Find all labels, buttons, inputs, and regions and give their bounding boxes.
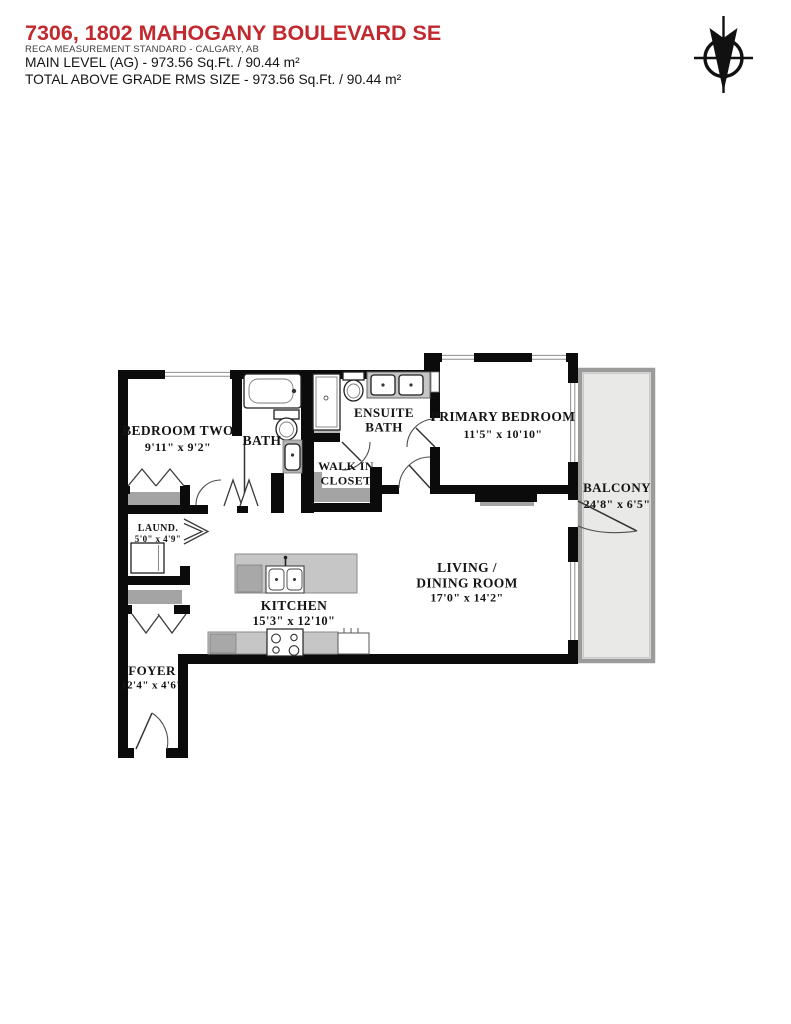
ensuite-double-vanity <box>367 372 430 398</box>
wall-segment <box>118 505 208 514</box>
island-dishwasher <box>237 565 262 592</box>
wall-segment <box>424 353 442 362</box>
walkin-closet-shelf <box>313 488 370 502</box>
room-label-bath: BATH <box>243 433 282 448</box>
bedroom-two-window <box>165 370 230 379</box>
room-label-bedroom-two: BEDROOM TWO <box>122 423 234 438</box>
room-label-primary: PRIMARY BEDROOM <box>431 409 576 424</box>
bedroom-two-door-arc <box>196 480 221 505</box>
room-label-walkin-1: WALK IN <box>318 459 374 473</box>
primary-bedroom-window-left <box>442 353 474 362</box>
bedroom-closet-bifold <box>128 469 156 486</box>
living-room-balcony-window <box>568 562 578 640</box>
counter-appliance <box>210 634 236 653</box>
wall-segment <box>313 433 340 442</box>
room-label-ensuite-2: BATH <box>365 420 402 435</box>
hall-double-door <box>224 480 242 506</box>
wall-segment <box>568 462 578 500</box>
room-dims-living: 17'0" x 14'2" <box>430 591 503 605</box>
wall-segment <box>166 748 188 758</box>
room-label-kitchen: KITCHEN <box>261 598 328 613</box>
bathtub <box>244 374 301 408</box>
doors <box>128 419 637 749</box>
ensuite-toilet <box>343 372 364 401</box>
bedroom-closet-bifold <box>156 469 184 486</box>
primary-bedroom-door <box>399 457 430 488</box>
balcony-area <box>580 370 653 661</box>
room-label-living-1: LIVING / <box>437 560 497 575</box>
media-niche-wall <box>475 493 537 502</box>
coat-closet-door <box>158 614 186 633</box>
wall-segment <box>568 353 578 383</box>
wall-segment <box>118 485 130 494</box>
room-dims-balcony: 24'8" x 6'5" <box>584 497 651 511</box>
wall-segment <box>301 372 314 513</box>
washer <box>131 543 164 573</box>
wall-segment <box>301 503 382 512</box>
room-label-ensuite-1: ENSUITE <box>354 405 414 420</box>
coat-closet-door <box>132 614 160 633</box>
room-dims-bedroom-two: 9'11" x 9'2" <box>145 440 211 454</box>
wall-segment <box>118 748 134 758</box>
wall-segment <box>178 654 188 758</box>
wall-segment <box>430 485 570 494</box>
stove <box>267 629 303 656</box>
north-arrow-compass-icon <box>694 16 753 93</box>
room-label-balcony: BALCONY <box>583 480 651 495</box>
fridge-cabinet <box>338 628 369 654</box>
shower-stall <box>313 374 340 430</box>
primary-wall-niche <box>431 372 439 392</box>
room-label-living-2: DINING ROOM <box>416 576 518 591</box>
floor-plan-page: 7306, 1802 MAHOGANY BOULEVARD SE RECA ME… <box>0 0 791 1024</box>
wall-segment <box>118 605 132 614</box>
room-dims-laundry: 5'0" x 4'9" <box>135 534 181 544</box>
primary-bedroom-window-right <box>532 353 566 362</box>
kitchen-island <box>235 554 357 593</box>
room-label-foyer: FOYER <box>128 663 176 678</box>
wall-segment <box>118 576 190 585</box>
wall-segment <box>568 527 578 562</box>
wall-segment <box>174 605 190 614</box>
wall-segment <box>382 485 399 494</box>
wall-segment <box>430 447 440 485</box>
room-dims-kitchen: 15'3" x 12'10" <box>253 614 336 628</box>
coat-closet-shelf <box>126 590 182 604</box>
room-dims-foyer: 12'4" x 4'6" <box>121 680 183 692</box>
bath-sink-vanity <box>283 440 302 473</box>
wall-segment <box>474 353 532 362</box>
wall-segment <box>271 473 284 513</box>
media-niche-shadow <box>480 502 534 506</box>
room-dims-primary: 11'5" x 10'10" <box>464 427 543 441</box>
bedroom-closet-shelf <box>126 492 182 505</box>
room-label-laundry: LAUND. <box>138 523 179 534</box>
wall-segment <box>188 654 578 664</box>
entry-door <box>136 713 168 749</box>
floor-plan-drawing: BEDROOM TWO 9'11" x 9'2" BATH ENSUITE BA… <box>0 0 791 1024</box>
kitchen-counter <box>208 628 369 656</box>
room-label-walkin-2: CLOSET <box>320 474 371 488</box>
hall-double-door <box>240 480 258 506</box>
